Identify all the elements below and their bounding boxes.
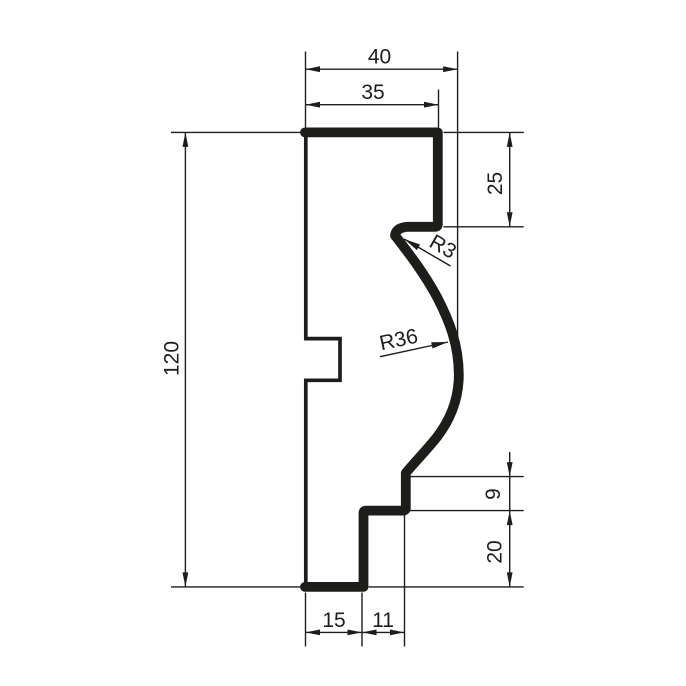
svg-text:40: 40 — [368, 46, 391, 69]
svg-text:25: 25 — [484, 172, 507, 195]
svg-text:20: 20 — [484, 540, 507, 563]
svg-text:35: 35 — [361, 81, 384, 104]
svg-text:9: 9 — [482, 488, 505, 500]
svg-text:11: 11 — [372, 609, 394, 632]
svg-text:120: 120 — [160, 341, 183, 376]
svg-text:15: 15 — [322, 609, 345, 632]
